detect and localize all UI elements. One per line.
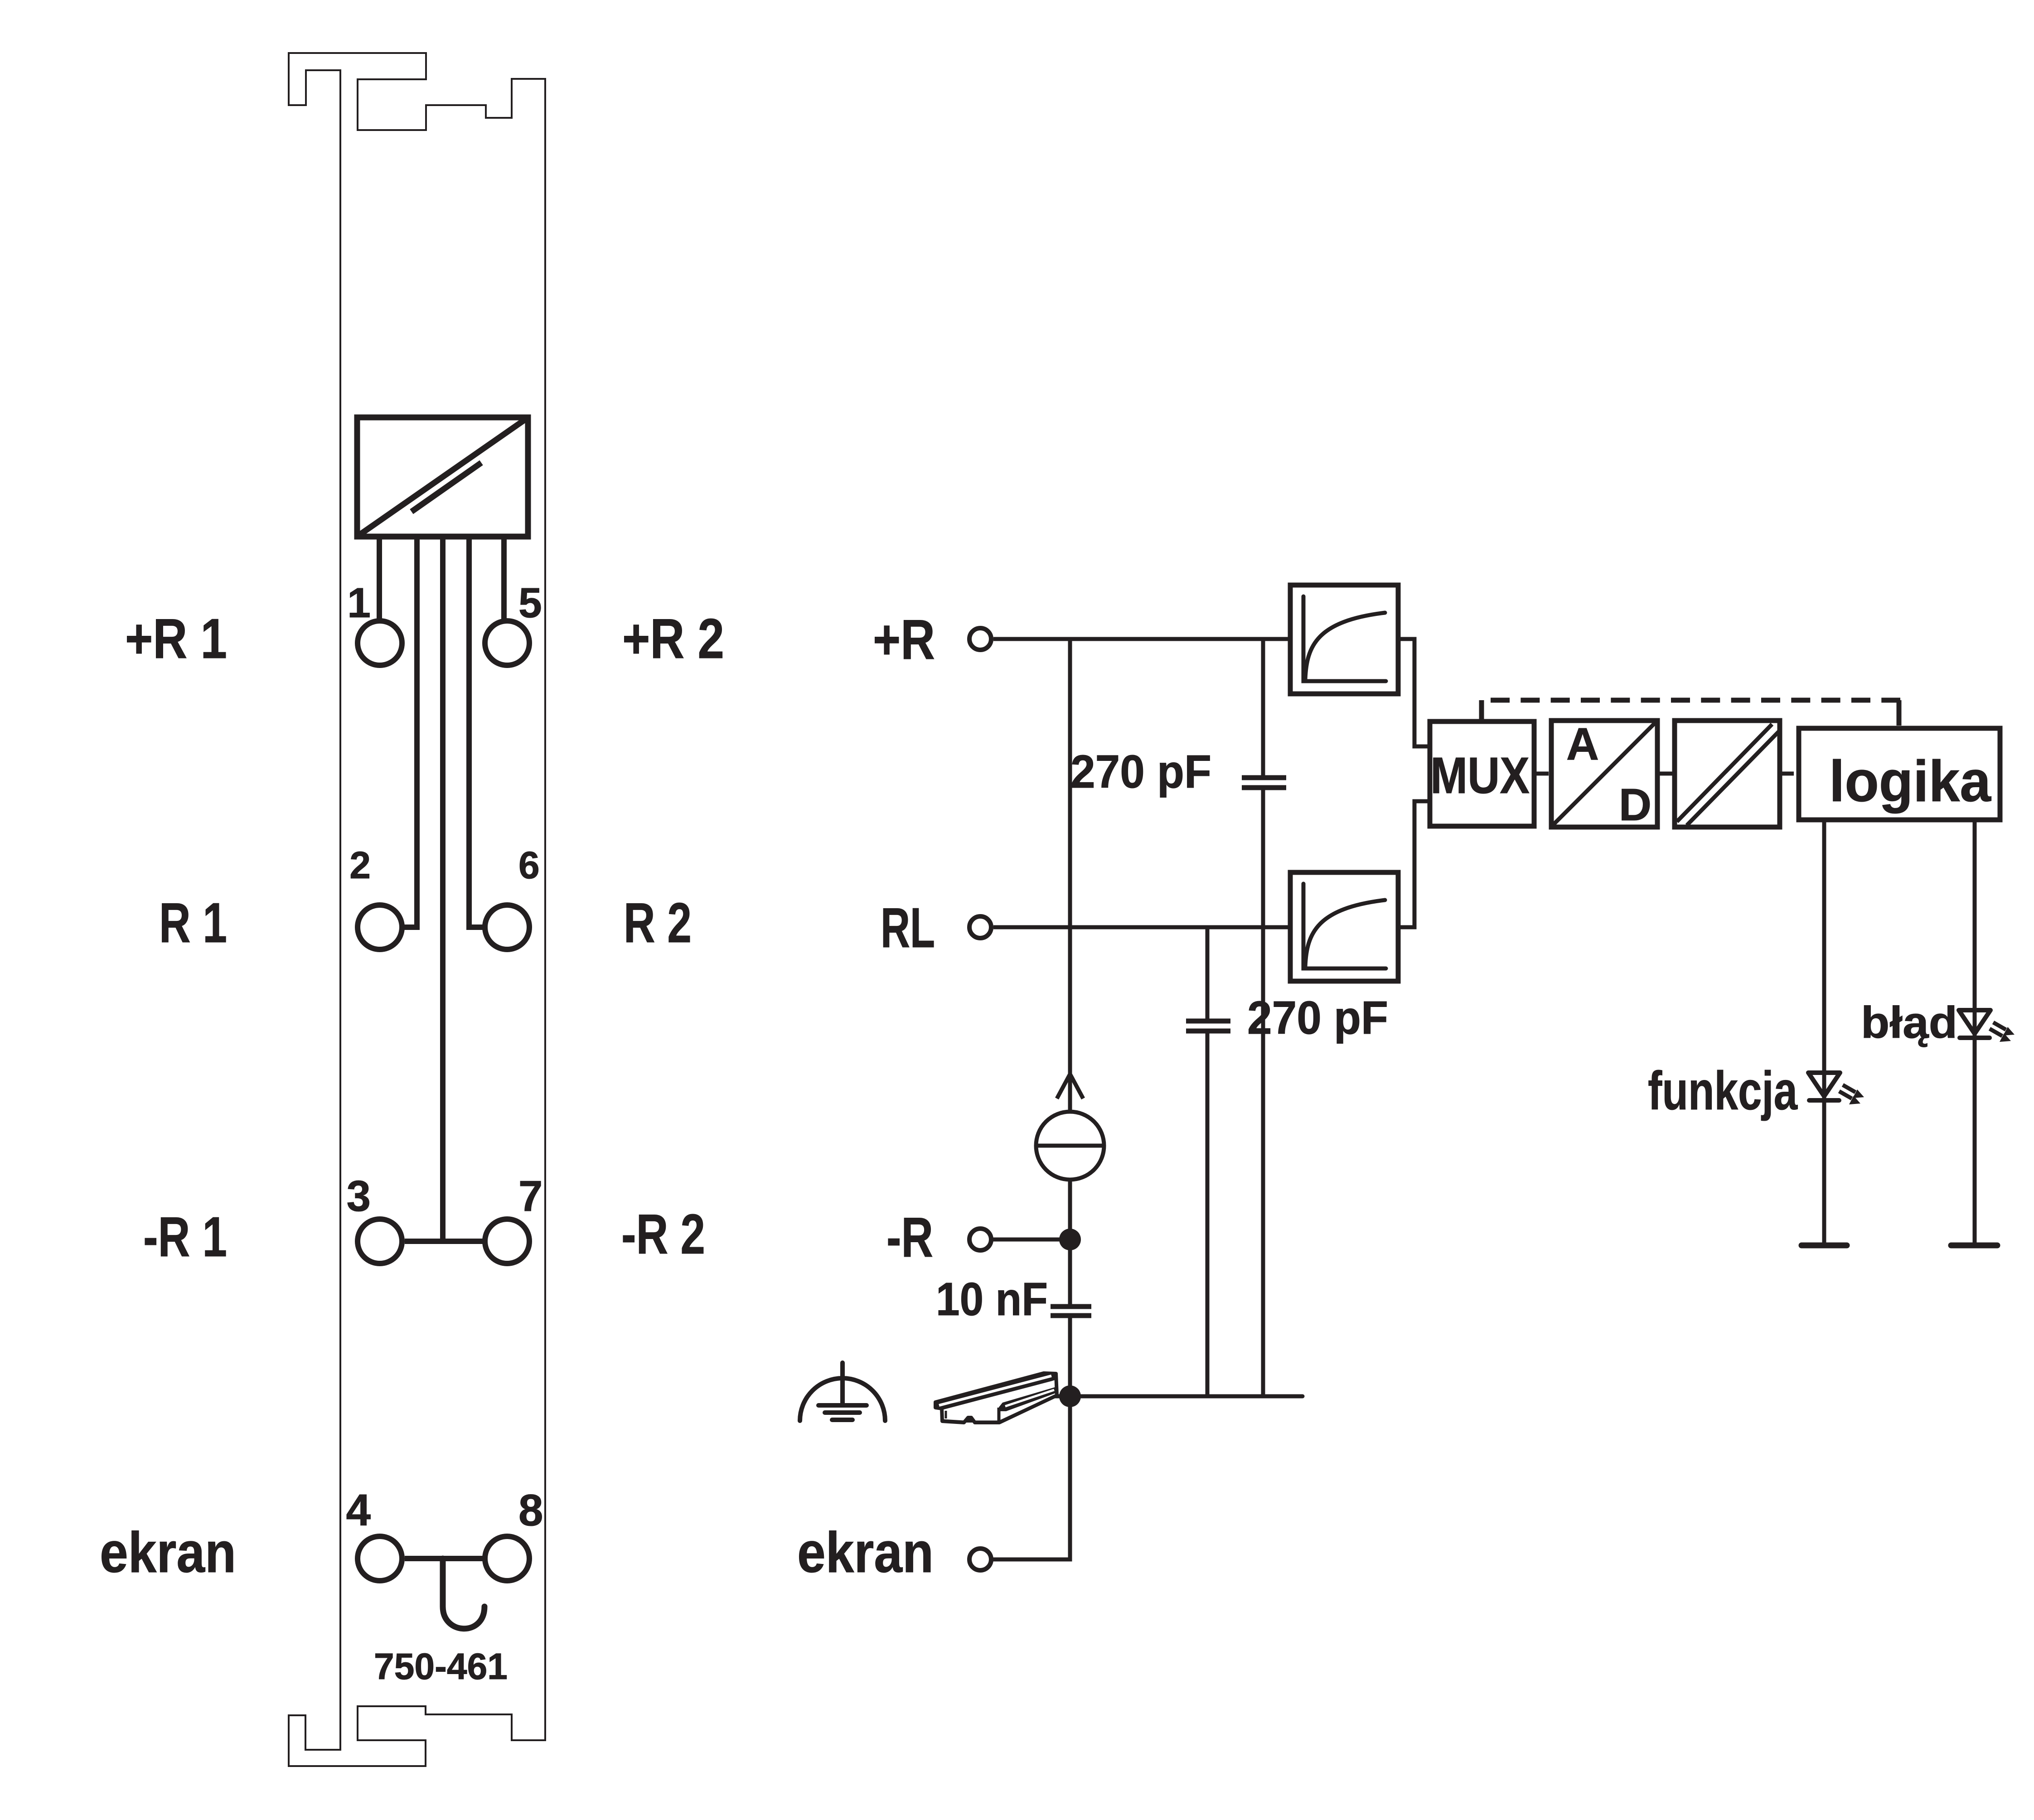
svg-text:+R: +R [873,609,935,671]
svg-text:D: D [1619,779,1651,830]
svg-text:270 pF: 270 pF [1070,745,1211,798]
svg-text:-R 1: -R 1 [143,1206,227,1268]
svg-text:3: 3 [347,1172,371,1220]
svg-text:7: 7 [518,1172,542,1220]
svg-text:A: A [1566,719,1599,770]
svg-text:błąd: błąd [1861,997,1957,1047]
svg-text:R 1: R 1 [159,892,227,954]
svg-text:+R 2: +R 2 [622,608,724,670]
svg-text:ekran: ekran [797,1520,934,1584]
svg-text:ekran: ekran [100,1520,236,1584]
svg-text:funkcja: funkcja [1648,1060,1798,1121]
svg-text:5: 5 [518,579,542,626]
svg-text:4: 4 [346,1485,371,1535]
svg-text:+R 1: +R 1 [125,608,227,670]
svg-text:8: 8 [518,1485,543,1535]
svg-text:MUX: MUX [1430,747,1530,804]
svg-text:R 2: R 2 [624,892,692,954]
svg-text:RL: RL [881,897,935,959]
svg-text:750-461: 750-461 [374,1646,508,1687]
svg-text:1: 1 [347,579,371,626]
svg-text:-R 2: -R 2 [621,1203,705,1266]
svg-text:6: 6 [518,844,540,886]
svg-text:logika: logika [1829,749,1991,814]
svg-text:270 pF: 270 pF [1247,992,1388,1044]
svg-text:-R: -R [886,1206,933,1269]
svg-text:10 nF: 10 nF [936,1273,1048,1325]
svg-text:2: 2 [349,844,371,886]
